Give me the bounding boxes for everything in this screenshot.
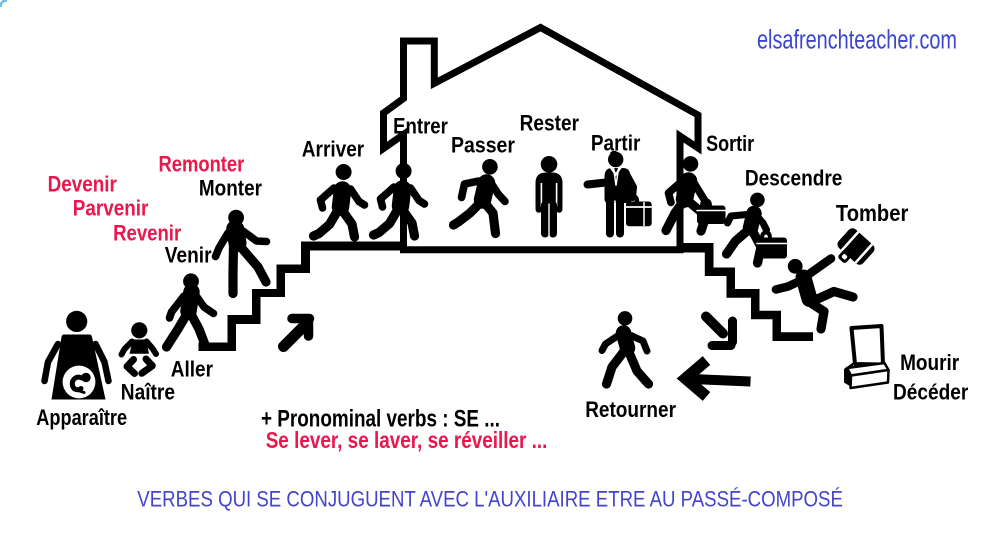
svg-text:elsafrenchteacher.com: elsafrenchteacher.com bbox=[757, 25, 957, 55]
svg-text:Descendre: Descendre bbox=[745, 166, 843, 191]
svg-text:Tomber: Tomber bbox=[836, 200, 908, 226]
svg-text:Rester: Rester bbox=[520, 110, 580, 135]
svg-text:Passer: Passer bbox=[451, 132, 515, 157]
svg-text:Venir: Venir bbox=[165, 242, 212, 267]
svg-text:Retourner: Retourner bbox=[585, 397, 676, 422]
svg-text:Aller: Aller bbox=[171, 357, 214, 382]
svg-text:Entrer: Entrer bbox=[393, 113, 448, 138]
svg-text:Partir: Partir bbox=[591, 130, 641, 155]
svg-text:Se lever, se laver, se réveill: Se lever, se laver, se réveiller ... bbox=[266, 427, 548, 453]
svg-text:Arriver: Arriver bbox=[302, 136, 365, 161]
svg-text:Remonter: Remonter bbox=[159, 151, 245, 176]
svg-text:Décéder: Décéder bbox=[893, 380, 969, 405]
svg-text:Monter: Monter bbox=[199, 176, 262, 201]
svg-text:Devenir: Devenir bbox=[48, 172, 118, 197]
svg-text:Naître: Naître bbox=[121, 380, 175, 405]
svg-text:Apparaître: Apparaître bbox=[36, 405, 127, 430]
svg-text:Mourir: Mourir bbox=[900, 350, 959, 375]
svg-text:Sortir: Sortir bbox=[706, 131, 754, 156]
svg-text:VERBES QUI SE CONJUGUENT AVEC: VERBES QUI SE CONJUGUENT AVEC L'AUXILIAI… bbox=[137, 487, 843, 512]
svg-text:Parvenir: Parvenir bbox=[73, 196, 149, 221]
